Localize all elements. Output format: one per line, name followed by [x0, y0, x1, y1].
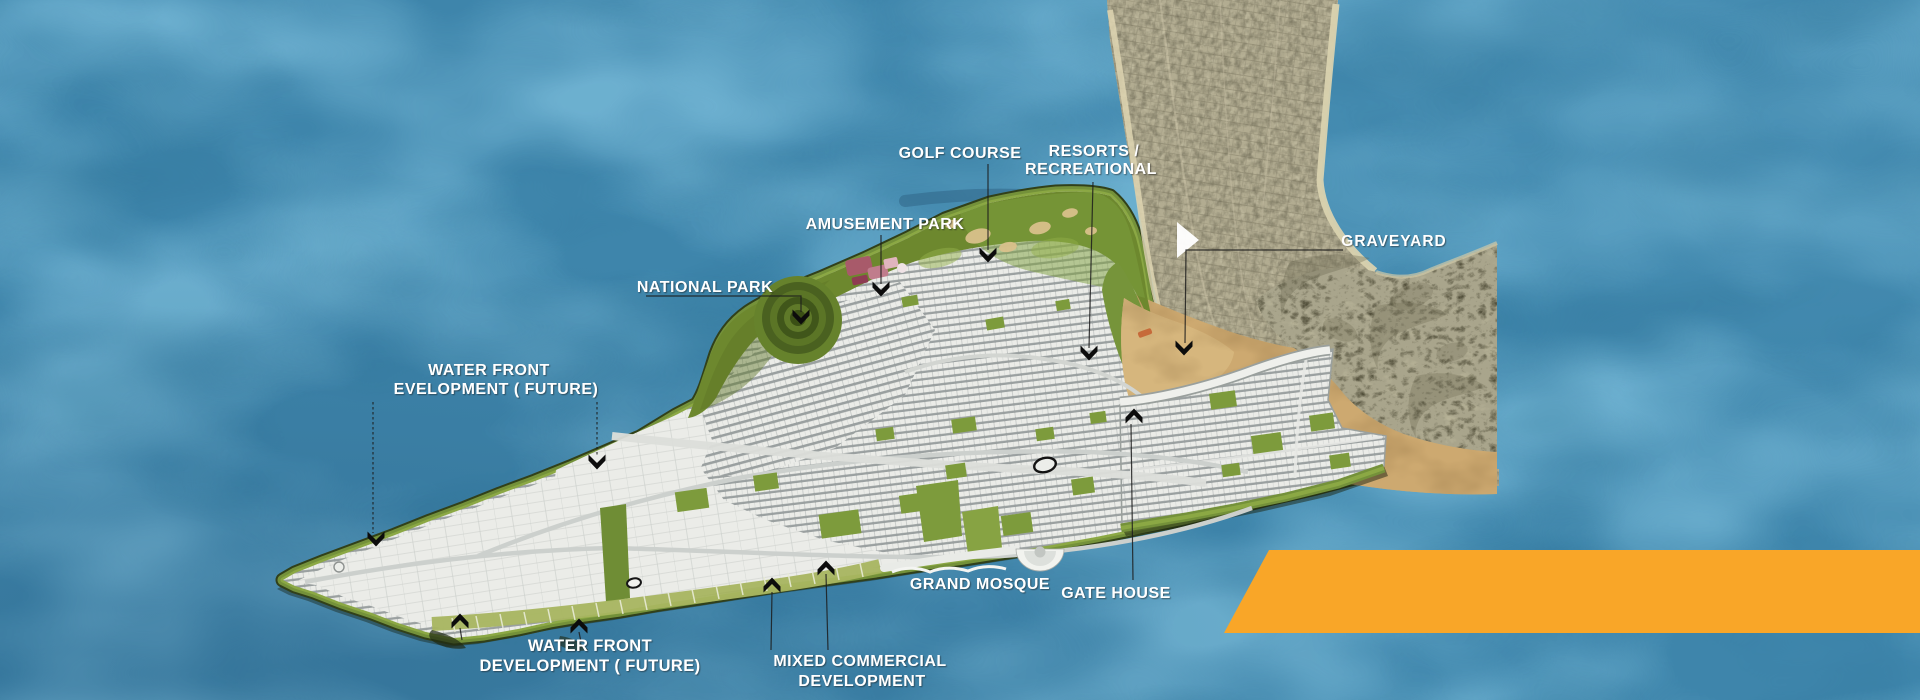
svg-text:AMUSEMENT PARK: AMUSEMENT PARK: [806, 216, 965, 233]
svg-text:MIXED COMMERCIAL: MIXED COMMERCIAL: [773, 653, 946, 670]
svg-text:RESORTS /: RESORTS /: [1049, 143, 1140, 160]
svg-text:EVELOPMENT ( FUTURE): EVELOPMENT ( FUTURE): [394, 381, 599, 398]
svg-text:RECREATIONAL: RECREATIONAL: [1025, 161, 1157, 178]
svg-text:GRAVEYARD: GRAVEYARD: [1341, 233, 1446, 250]
svg-text:WATER FRONT: WATER FRONT: [428, 362, 550, 379]
svg-text:GATE HOUSE: GATE HOUSE: [1061, 585, 1171, 602]
svg-text:WATER FRONT: WATER FRONT: [528, 637, 652, 655]
svg-text:DEVELOPMENT ( FUTURE): DEVELOPMENT ( FUTURE): [479, 657, 700, 675]
svg-text:GRAND MOSQUE: GRAND MOSQUE: [910, 576, 1050, 593]
svg-text:NATIONAL PARK: NATIONAL PARK: [637, 279, 773, 296]
svg-text:DEVELOPMENT: DEVELOPMENT: [798, 673, 925, 690]
svg-text:GOLF COURSE: GOLF COURSE: [899, 145, 1022, 162]
